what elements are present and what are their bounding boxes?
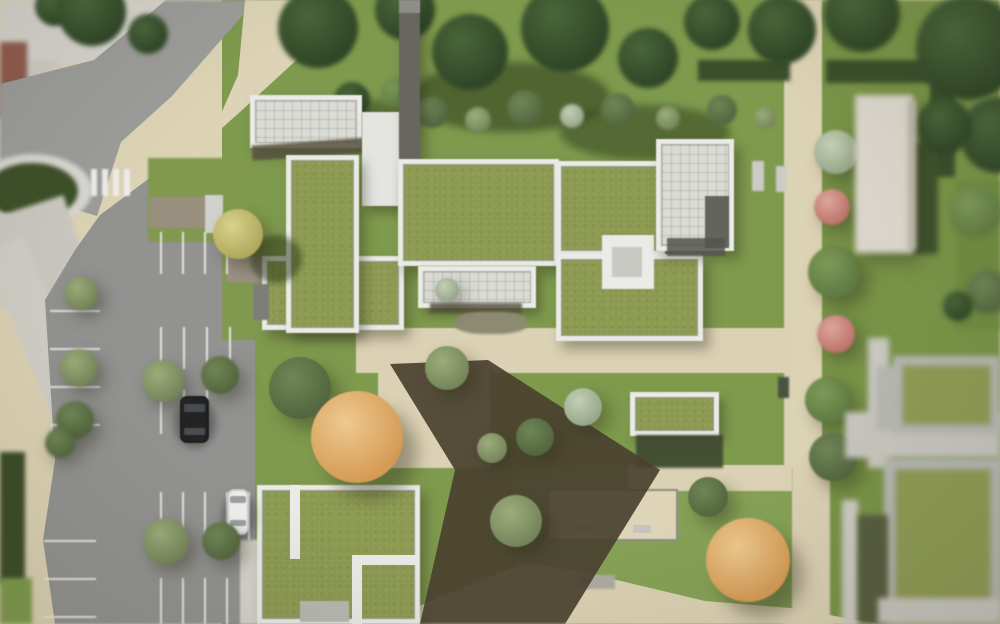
- tree: [490, 495, 542, 547]
- parking-stall-line: [44, 540, 96, 542]
- hedge-bottom-left: [0, 452, 25, 584]
- blurred-parapet-arm: [876, 366, 898, 430]
- parapet-inner-wall: [352, 555, 362, 624]
- tree: [688, 477, 728, 517]
- building-green-roof: [630, 392, 719, 436]
- shrub: [754, 107, 776, 129]
- shrub: [416, 96, 448, 128]
- facade-shadow: [667, 238, 725, 256]
- shrub: [560, 104, 584, 128]
- chimney-tower-cap: [399, 0, 420, 13]
- parking-stall-line: [204, 578, 206, 624]
- site-plan-aerial-rendering: [0, 0, 1000, 624]
- bench: [633, 525, 651, 533]
- parking-stall-line: [183, 327, 185, 369]
- tree: [618, 28, 678, 88]
- car-rear-window: [184, 428, 205, 435]
- shrub-bed: [455, 312, 527, 334]
- car-black: [180, 396, 209, 443]
- green-roof-surface: [895, 469, 991, 607]
- tree-silver: [814, 130, 858, 174]
- vent-slab: [776, 166, 786, 192]
- paving-bottom-right: [878, 598, 1000, 624]
- gray-ground-pad: [253, 284, 269, 320]
- shrub: [707, 95, 737, 125]
- tree-orange-large: [311, 391, 403, 483]
- blurred-building-shade: [908, 100, 916, 250]
- parking-stall-line: [182, 232, 184, 274]
- shrub: [465, 107, 491, 133]
- crosswalk-stripe: [102, 169, 108, 196]
- bench-dark: [778, 377, 789, 398]
- green-roof-surface: [291, 160, 354, 328]
- grass-bottom-left: [0, 578, 32, 624]
- tree: [477, 433, 507, 463]
- paved-roof-surface: [255, 100, 357, 143]
- parking-stall-line: [44, 616, 96, 618]
- parapet-inner-wall: [352, 555, 419, 565]
- parking-stall-line: [204, 232, 206, 274]
- parking-stall-line: [160, 578, 162, 624]
- building-white-wing: [362, 112, 400, 206]
- tree: [60, 349, 98, 387]
- tree: [142, 360, 184, 402]
- tree: [201, 356, 239, 394]
- parapet-inner-wall: [290, 485, 300, 559]
- parking-stall-line: [226, 578, 228, 624]
- shrub: [601, 93, 635, 127]
- roof-terrace-step: [612, 247, 642, 277]
- building-green-roof: [398, 159, 559, 266]
- green-roof-surface: [403, 164, 554, 261]
- tree: [425, 346, 469, 390]
- tree-pink: [814, 189, 850, 225]
- crosswalk-stripe: [124, 169, 130, 196]
- tree: [808, 246, 860, 298]
- tree: [916, 98, 972, 154]
- tree: [516, 418, 554, 456]
- tree: [432, 14, 508, 90]
- tree-pink: [817, 315, 855, 353]
- crosswalk-stripe: [91, 169, 97, 196]
- shrub: [656, 106, 680, 130]
- inner-courtyard-paving: [300, 601, 349, 622]
- blurred-building-white: [855, 95, 913, 253]
- tree-yellow: [213, 209, 263, 259]
- tree: [564, 388, 602, 426]
- shrub: [435, 278, 459, 302]
- green-roof-surface: [902, 365, 991, 425]
- blurred-building-green-roof: [884, 458, 1000, 618]
- tree: [143, 518, 189, 564]
- tree: [64, 276, 98, 310]
- parking-stall-line: [182, 578, 184, 624]
- tree: [45, 428, 75, 458]
- green-roof-surface: [635, 397, 714, 431]
- tree-orange: [706, 518, 790, 602]
- parking-stall-line: [160, 232, 162, 274]
- tree: [128, 14, 168, 54]
- tree: [949, 186, 1000, 238]
- crosswalk-stripe: [113, 169, 119, 196]
- blurred-building-green-roof: [893, 356, 1000, 434]
- shrub-bed: [150, 197, 208, 228]
- vent-slab: [752, 161, 764, 191]
- parking-stall-line: [50, 310, 100, 312]
- tree: [943, 291, 973, 321]
- car-windshield: [184, 404, 205, 412]
- tree: [202, 522, 240, 560]
- path-narrow-right: [842, 500, 858, 624]
- car-windshield: [230, 496, 246, 503]
- parking-stall-line: [44, 578, 96, 580]
- shrub: [507, 90, 543, 126]
